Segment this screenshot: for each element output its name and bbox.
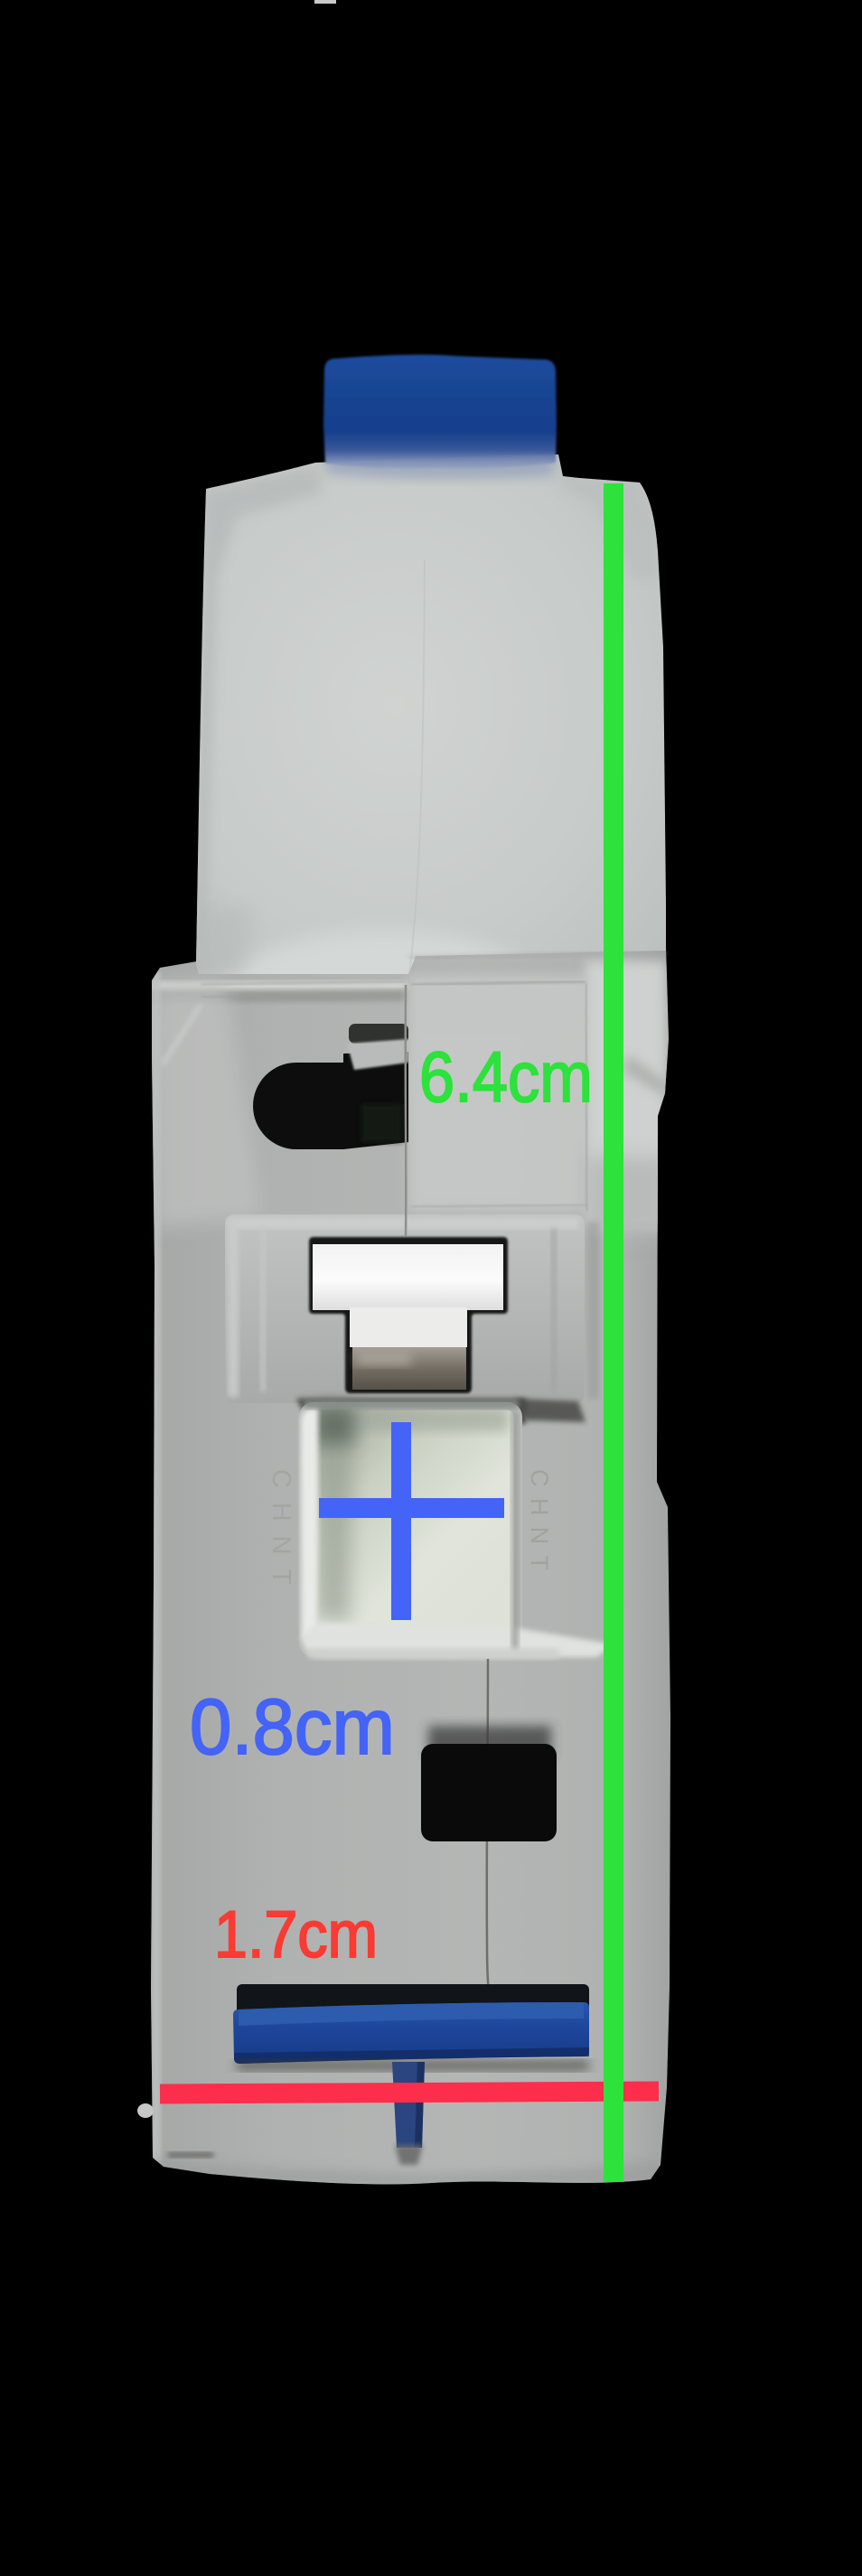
svg-text:1.7cm: 1.7cm: [214, 1898, 378, 1972]
svg-text:0.8cm: 0.8cm: [190, 1683, 395, 1771]
svg-text:6.4cm: 6.4cm: [419, 1036, 593, 1117]
